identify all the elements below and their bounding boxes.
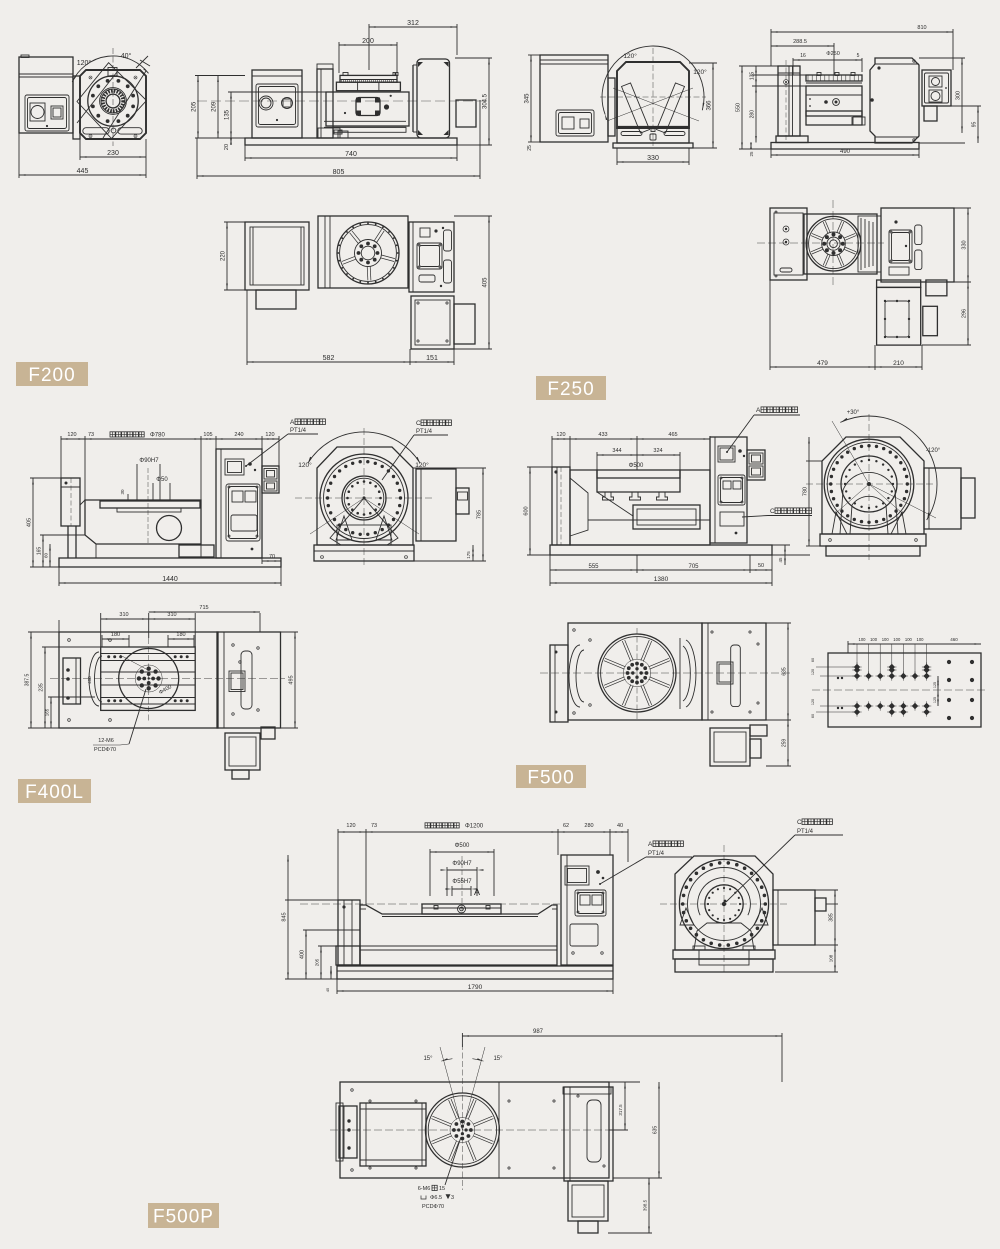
- svg-text:317.5: 317.5: [618, 1104, 623, 1116]
- svg-text:280: 280: [750, 110, 756, 119]
- svg-text:230: 230: [107, 150, 119, 157]
- svg-text:PCDΦ70: PCDΦ70: [422, 1204, 444, 1210]
- svg-text:1380: 1380: [654, 576, 669, 583]
- svg-text:F500: F500: [527, 767, 574, 788]
- svg-text:3: 3: [451, 1195, 454, 1201]
- svg-text:259: 259: [782, 739, 788, 748]
- svg-text:105: 105: [203, 432, 212, 438]
- svg-text:70: 70: [269, 554, 275, 560]
- svg-text:165: 165: [45, 708, 50, 716]
- svg-text:50: 50: [758, 563, 764, 569]
- svg-text:1440: 1440: [162, 576, 178, 583]
- svg-text:205: 205: [315, 958, 320, 966]
- svg-text:120: 120: [811, 699, 815, 705]
- svg-text:398.5: 398.5: [643, 1199, 648, 1211]
- svg-text:15°: 15°: [493, 1056, 503, 1062]
- svg-text:PT1/4: PT1/4: [797, 829, 814, 835]
- svg-text:25: 25: [749, 151, 754, 157]
- svg-text:A: A: [474, 887, 480, 897]
- svg-text:465: 465: [668, 432, 677, 438]
- svg-text:120: 120: [265, 432, 274, 438]
- svg-text:F500P: F500P: [153, 1206, 214, 1227]
- svg-text:120: 120: [67, 432, 76, 438]
- svg-text:100: 100: [917, 637, 925, 642]
- svg-text:100: 100: [905, 637, 913, 642]
- svg-text:387.5: 387.5: [25, 674, 31, 687]
- svg-text:600: 600: [524, 506, 530, 515]
- svg-text:A: A: [648, 841, 653, 848]
- svg-text:A: A: [290, 419, 295, 426]
- svg-text:F400L: F400L: [25, 782, 84, 803]
- svg-text:785: 785: [477, 510, 483, 519]
- svg-text:433: 433: [598, 432, 607, 438]
- svg-text:715: 715: [199, 605, 208, 611]
- svg-text:PT1/4: PT1/4: [416, 429, 433, 435]
- svg-text:805: 805: [333, 169, 345, 176]
- svg-text:Φ50: Φ50: [156, 477, 168, 483]
- svg-text:45: 45: [778, 557, 783, 563]
- svg-text:Φ250: Φ250: [826, 51, 840, 57]
- svg-text:288.5: 288.5: [793, 39, 807, 45]
- svg-text:445: 445: [77, 168, 89, 175]
- svg-text:F250: F250: [547, 379, 594, 400]
- svg-text:635: 635: [653, 1126, 659, 1135]
- svg-text:5: 5: [857, 53, 860, 59]
- svg-text:400: 400: [87, 676, 92, 684]
- svg-text:987: 987: [533, 1029, 544, 1035]
- svg-text:100: 100: [893, 637, 901, 642]
- svg-text:100: 100: [882, 637, 890, 642]
- svg-text:60: 60: [811, 658, 815, 662]
- svg-text:330: 330: [647, 155, 659, 162]
- svg-text:280: 280: [584, 823, 593, 829]
- svg-text:312: 312: [407, 20, 419, 27]
- svg-text:555: 555: [588, 564, 599, 570]
- svg-text:135: 135: [225, 109, 231, 120]
- svg-text:200: 200: [362, 38, 374, 45]
- svg-text:205: 205: [192, 101, 198, 112]
- svg-text:PT1/4: PT1/4: [648, 851, 665, 857]
- svg-text:296: 296: [962, 309, 968, 318]
- svg-text:60: 60: [811, 714, 815, 718]
- svg-text:165: 165: [37, 547, 43, 556]
- svg-text:Φ55H7: Φ55H7: [452, 879, 472, 885]
- svg-text:635: 635: [782, 667, 788, 676]
- svg-text:60: 60: [44, 553, 49, 559]
- svg-text:235: 235: [39, 683, 45, 692]
- svg-text:A: A: [756, 407, 761, 414]
- svg-text:100: 100: [870, 637, 878, 642]
- svg-text:25: 25: [527, 145, 533, 151]
- svg-text:125: 125: [933, 682, 937, 688]
- svg-text:20: 20: [224, 144, 230, 150]
- svg-text:120°: 120°: [693, 68, 707, 76]
- svg-text:1790: 1790: [468, 984, 483, 991]
- svg-text:PCDΦ70: PCDΦ70: [94, 747, 116, 753]
- svg-text:6-M6: 6-M6: [418, 1186, 431, 1192]
- svg-text:C: C: [770, 508, 775, 515]
- svg-text:12-M6: 12-M6: [98, 738, 114, 744]
- svg-text:135: 135: [750, 72, 756, 81]
- svg-text:324: 324: [653, 448, 662, 454]
- svg-text:210: 210: [893, 360, 904, 367]
- svg-text:175: 175: [466, 551, 471, 559]
- svg-text:+30°: +30°: [847, 410, 860, 416]
- svg-text:310: 310: [167, 612, 176, 618]
- svg-text:100: 100: [859, 637, 867, 642]
- svg-text:-120°: -120°: [926, 448, 941, 454]
- svg-text:Φ90H7: Φ90H7: [139, 458, 159, 464]
- svg-text:PT1/4: PT1/4: [290, 428, 307, 434]
- svg-text:30: 30: [120, 489, 125, 495]
- svg-text:240: 240: [234, 432, 243, 438]
- svg-text:95: 95: [972, 122, 978, 128]
- svg-text:300: 300: [956, 91, 962, 100]
- svg-text:40: 40: [617, 823, 623, 829]
- svg-text:40°: 40°: [121, 52, 132, 60]
- svg-text:180: 180: [111, 632, 120, 638]
- svg-text:C: C: [416, 420, 421, 427]
- svg-text:108: 108: [829, 954, 834, 962]
- svg-text:345: 345: [525, 93, 531, 104]
- svg-text:120: 120: [556, 432, 565, 438]
- svg-text:344: 344: [612, 448, 621, 454]
- svg-text:705: 705: [688, 564, 699, 570]
- svg-text:810: 810: [917, 25, 926, 31]
- svg-text:C: C: [797, 819, 802, 826]
- svg-text:F200: F200: [28, 365, 75, 386]
- svg-text:-120°: -120°: [621, 52, 637, 60]
- svg-text:405: 405: [27, 518, 33, 527]
- svg-text:209: 209: [212, 101, 218, 112]
- svg-text:780: 780: [803, 487, 809, 496]
- svg-text:550: 550: [736, 103, 742, 112]
- svg-text:15°: 15°: [423, 1056, 433, 1062]
- svg-text:Φ6.5: Φ6.5: [430, 1195, 442, 1201]
- svg-text:405: 405: [483, 277, 489, 288]
- svg-text:385: 385: [829, 913, 835, 922]
- svg-text:180: 180: [176, 632, 185, 638]
- svg-text:73: 73: [88, 432, 94, 438]
- svg-text:15: 15: [439, 1186, 445, 1192]
- svg-text:120°: 120°: [298, 461, 312, 469]
- svg-text:479: 479: [817, 360, 828, 367]
- svg-text:304.5: 304.5: [483, 93, 489, 109]
- svg-text:Φ500: Φ500: [455, 843, 470, 849]
- svg-text:Φ780: Φ780: [150, 433, 165, 439]
- svg-text:Φ1200: Φ1200: [465, 824, 484, 830]
- svg-text:73: 73: [371, 823, 377, 829]
- svg-text:62: 62: [563, 823, 569, 829]
- svg-text:460: 460: [950, 637, 958, 642]
- svg-text:845: 845: [282, 912, 288, 921]
- svg-text:366: 366: [707, 100, 713, 111]
- svg-text:16: 16: [800, 53, 806, 59]
- svg-text:495: 495: [289, 675, 295, 684]
- svg-text:120: 120: [811, 669, 815, 675]
- svg-text:45: 45: [325, 987, 330, 992]
- svg-text:740: 740: [345, 151, 357, 158]
- svg-text:Φ500: Φ500: [629, 463, 644, 469]
- svg-text:120: 120: [346, 823, 355, 829]
- svg-text:Φ90H7: Φ90H7: [452, 861, 472, 867]
- svg-text:310: 310: [119, 612, 128, 618]
- svg-text:220: 220: [221, 250, 227, 261]
- svg-text:490: 490: [840, 149, 851, 155]
- svg-text:330: 330: [962, 240, 968, 249]
- svg-text:125: 125: [933, 697, 937, 703]
- svg-text:120°: 120°: [77, 59, 92, 67]
- svg-text:400: 400: [300, 950, 306, 959]
- svg-text:Φ400: Φ400: [158, 684, 173, 696]
- svg-text:582: 582: [323, 355, 335, 362]
- svg-text:151: 151: [426, 355, 438, 362]
